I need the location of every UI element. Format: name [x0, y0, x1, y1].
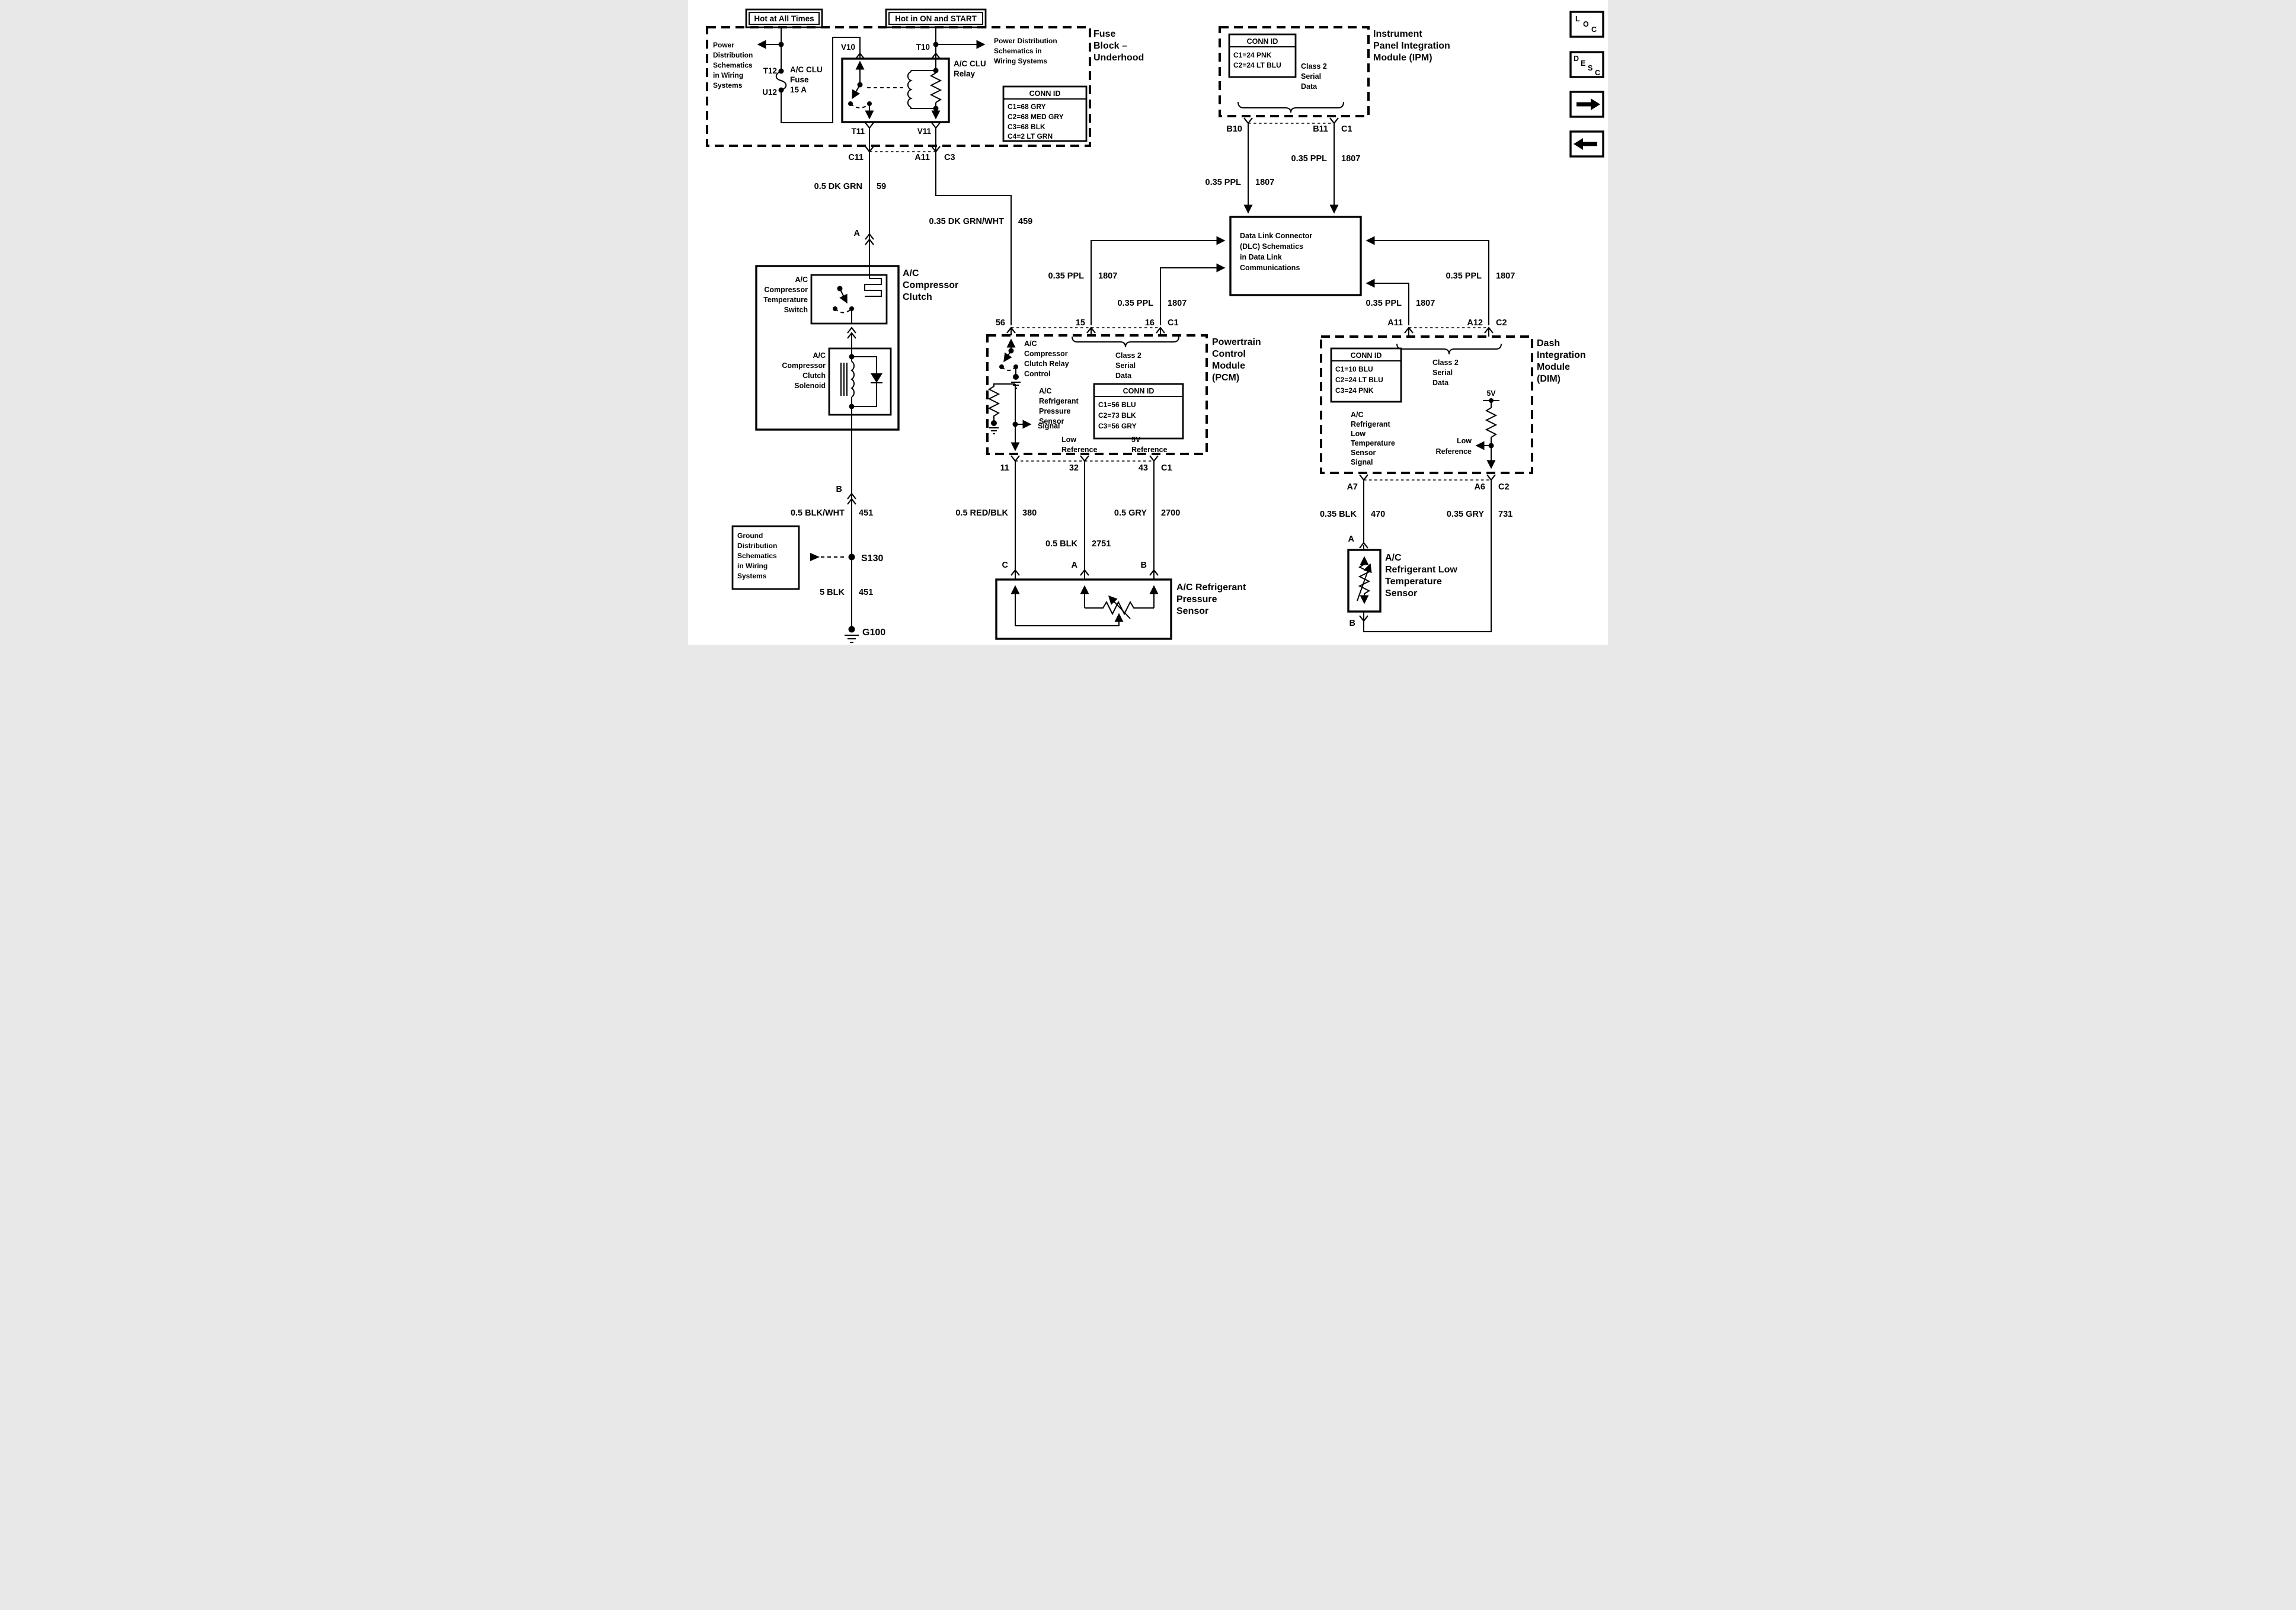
solenoid-coil: [852, 361, 854, 397]
pcm-class2-brace: [1072, 337, 1179, 347]
svg-text:CONN ID: CONN ID: [1123, 387, 1155, 395]
loc-button[interactable]: L O C: [1571, 12, 1603, 37]
svg-text:Compressor: Compressor: [903, 280, 958, 290]
wire-circuit: 731: [1498, 510, 1512, 519]
pin-15: 15: [1076, 318, 1085, 328]
svg-text:Serial: Serial: [1115, 361, 1136, 370]
svg-text:A/C CLU: A/C CLU: [790, 65, 823, 74]
dim-5v-pullup: 5V Low Reference: [1436, 389, 1499, 468]
pin-a7: A7: [1347, 482, 1358, 492]
schematic-canvas: Hot at All Times Hot in ON and START Fus…: [688, 0, 1608, 645]
svg-text:CONN ID: CONN ID: [1351, 351, 1382, 360]
ac-compressor-temperature-switch: A/C Compressor Temperature Switch: [763, 266, 887, 324]
pin-t11: T11: [851, 127, 865, 136]
svg-text:Data: Data: [1301, 82, 1318, 91]
wire-dk-grn-59: 0.5 DK GRN 59 A: [814, 152, 887, 266]
wire-ppl-1807-pcm15: 0.35 PPL 1807: [1048, 241, 1224, 325]
svg-text:Data: Data: [1115, 372, 1132, 380]
svg-text:Data: Data: [1432, 379, 1449, 387]
ground-g100-dot: [849, 626, 855, 633]
svg-text:Power Distribution: Power Distribution: [994, 37, 1057, 45]
pcm-bottom-connector: 11 32 43 C1: [1000, 456, 1172, 473]
wire-gauge: 0.35 BLK: [1320, 510, 1357, 519]
svg-text:Reference: Reference: [1131, 446, 1167, 454]
hot-in-on-start-banner: Hot in ON and START: [886, 9, 986, 27]
pin-c3: C3: [944, 153, 955, 162]
svg-text:C3=68 BLK: C3=68 BLK: [1008, 123, 1045, 131]
svg-text:O: O: [1583, 20, 1589, 28]
pcm-class2-label: Class 2 Serial Data: [1115, 351, 1141, 380]
dim-title: Dash: [1537, 338, 1560, 348]
fuse-block-underhood: Fuse Block – Underhood Power Distributio…: [707, 27, 1144, 152]
left-arrow-icon: [1574, 138, 1597, 150]
wire-gauge: 0.5 GRY: [1114, 508, 1147, 518]
ground-g100: G100: [862, 628, 885, 638]
dim-bottom-connector: A7 A6 C2: [1347, 475, 1509, 492]
wire-circuit: 1807: [1341, 154, 1360, 164]
pin-b11: B11: [1313, 124, 1328, 134]
svg-text:C4=2 LT GRN: C4=2 LT GRN: [1008, 132, 1053, 140]
svg-text:in Wiring: in Wiring: [713, 71, 743, 79]
svg-text:5V: 5V: [1131, 436, 1141, 444]
svg-text:C: C: [1591, 25, 1597, 34]
pressure-sensor-connector: C A B: [1002, 561, 1158, 580]
ac-refrigerant-low-temperature-sensor: A/C Refrigerant Low Temperature Sensor B: [1348, 550, 1457, 628]
dim-class2-label: Class 2 Serial Data: [1432, 359, 1459, 387]
ipm-title: Instrument: [1373, 29, 1422, 39]
wire-gauge: 0.5 BLK: [1045, 539, 1078, 549]
fuse-block-conn-id: CONN ID C1=68 GRY C2=68 MED GRY C3=68 BL…: [1003, 87, 1086, 141]
svg-text:C3=56 GRY: C3=56 GRY: [1098, 422, 1137, 430]
pin-t12: T12: [763, 66, 777, 75]
hot-at-all-times-banner: Hot at All Times: [746, 9, 822, 27]
svg-text:Sensor: Sensor: [1385, 588, 1417, 598]
svg-text:Pressure: Pressure: [1176, 594, 1217, 604]
svg-text:Signal: Signal: [1038, 422, 1060, 430]
svg-text:C1=68 GRY: C1=68 GRY: [1008, 103, 1046, 111]
svg-text:Refrigerant: Refrigerant: [1351, 420, 1391, 428]
pin-c1: C1: [1168, 318, 1179, 328]
svg-text:(DLC) Schematics: (DLC) Schematics: [1240, 242, 1303, 251]
data-link-connector-box: Data Link Connector (DLC) Schematics in …: [1230, 217, 1361, 295]
next-button[interactable]: [1571, 92, 1603, 117]
wire-blk-2751: 0.5 BLK 2751: [1045, 461, 1111, 570]
power-distribution-note-right: Power Distribution Schematics in Wiring …: [994, 37, 1057, 65]
svg-text:Wiring Systems: Wiring Systems: [994, 57, 1047, 65]
pin-a11: A11: [1387, 318, 1403, 328]
pcm-conn-id: CONN ID C1=56 BLU C2=73 BLK C3=56 GRY: [1094, 384, 1183, 438]
svg-text:Pressure: Pressure: [1039, 407, 1071, 415]
svg-text:Communications: Communications: [1240, 264, 1300, 272]
svg-text:A/C: A/C: [795, 276, 808, 284]
svg-text:Serial: Serial: [1432, 369, 1453, 377]
ac-compressor-clutch-solenoid: A/C Compressor Clutch Solenoid: [782, 348, 891, 415]
svg-text:Compressor: Compressor: [782, 361, 826, 370]
svg-text:Refrigerant Low: Refrigerant Low: [1385, 565, 1457, 575]
wire-gauge: 0.35 PPL: [1118, 299, 1154, 308]
dim-class2-brace: [1397, 344, 1501, 354]
svg-text:A/C CLU: A/C CLU: [954, 59, 986, 68]
svg-text:E: E: [1581, 59, 1585, 68]
svg-text:A/C: A/C: [1039, 387, 1052, 395]
svg-text:C2=73 BLK: C2=73 BLK: [1098, 411, 1136, 420]
svg-text:S: S: [1588, 64, 1593, 72]
svg-text:Sensor: Sensor: [1351, 449, 1376, 457]
svg-text:Power: Power: [713, 41, 734, 49]
svg-text:Panel Integration: Panel Integration: [1373, 41, 1450, 51]
svg-text:C2=24 LT BLU: C2=24 LT BLU: [1233, 61, 1281, 69]
svg-text:Low: Low: [1457, 437, 1472, 445]
svg-text:Signal: Signal: [1351, 458, 1373, 466]
svg-text:C1=24 PNK: C1=24 PNK: [1233, 51, 1272, 59]
svg-text:A/C: A/C: [1351, 411, 1364, 419]
pcm-low-reference-label: Low Reference: [1061, 436, 1097, 454]
banner-label: Hot at All Times: [754, 14, 814, 23]
svg-text:Module (IPM): Module (IPM): [1373, 53, 1432, 63]
wire-gauge: 0.35 PPL: [1446, 271, 1482, 281]
svg-text:Low: Low: [1351, 430, 1366, 438]
wire-circuit: 1807: [1168, 299, 1187, 308]
pin-v10: V10: [841, 43, 855, 52]
lts-title: A/C: [1385, 553, 1402, 563]
wire-gauge: 5 BLK: [820, 588, 845, 597]
pcm-title: Powertrain: [1212, 337, 1261, 347]
instrument-panel-integration-module: Instrument Panel Integration Module (IPM…: [1220, 27, 1450, 116]
desc-button[interactable]: D E S C: [1571, 52, 1603, 77]
wire-gauge: 0.35 DK GRN/WHT: [929, 217, 1005, 226]
temp-switch-blade: [840, 289, 847, 303]
svg-text:Class 2: Class 2: [1115, 351, 1141, 360]
svg-text:in Data Link: in Data Link: [1240, 253, 1282, 261]
wire-circuit: 1807: [1496, 271, 1515, 281]
splice-s130: S130: [861, 553, 883, 564]
svg-text:Schematics in: Schematics in: [994, 47, 1042, 55]
svg-text:Temperature: Temperature: [763, 296, 808, 304]
ac-compressor-clutch: A/C Compressor Clutch A/C Compressor Tem…: [756, 266, 958, 430]
t11-connector: [865, 123, 874, 128]
pin-a: A: [1072, 561, 1078, 570]
pressure-sensor-title: A/C Refrigerant: [1176, 582, 1246, 593]
desc-letter: D: [1574, 55, 1579, 63]
svg-text:Serial: Serial: [1301, 72, 1321, 81]
svg-text:Block –: Block –: [1093, 41, 1127, 51]
wire-gauge: 0.35 GRY: [1447, 510, 1484, 519]
svg-text:Clutch: Clutch: [903, 292, 932, 302]
wire-circuit: 459: [1018, 217, 1032, 226]
dim-conn-id: CONN ID C1=10 BLU C2=24 LT BLU C3=24 PNK: [1331, 348, 1401, 402]
svg-text:Clutch: Clutch: [802, 372, 826, 380]
svg-text:(PCM): (PCM): [1212, 373, 1239, 383]
solenoid-diode: [871, 373, 882, 383]
ipm-bottom-connector: B10 B11 C1: [1226, 118, 1352, 134]
inline-connector-b: B: [836, 485, 842, 494]
wire-gauge: 0.5 RED/BLK: [955, 508, 1008, 518]
svg-text:Class 2: Class 2: [1432, 359, 1459, 367]
back-button[interactable]: [1571, 132, 1603, 156]
clutch-title: A/C: [903, 268, 919, 279]
loc-letter: L: [1575, 15, 1580, 23]
svg-text:Fuse: Fuse: [790, 75, 809, 84]
dim-lts-signal-label: A/C Refrigerant Low Temperature Sensor S…: [1351, 411, 1395, 466]
pin-c: C: [1002, 561, 1009, 570]
ac-clu-relay: A/C CLU Relay: [842, 59, 986, 122]
svg-text:Solenoid: Solenoid: [794, 382, 826, 390]
svg-text:Temperature: Temperature: [1385, 577, 1442, 587]
wire-circuit: 1807: [1255, 178, 1274, 187]
pin-t10: T10: [916, 43, 930, 52]
pin-b10: B10: [1226, 124, 1242, 134]
temp-switch-element: [865, 266, 881, 296]
svg-text:Underhood: Underhood: [1093, 53, 1144, 63]
ipm-class2-label: Class 2 Serial Data: [1301, 62, 1327, 91]
relay-switch-blade: [852, 85, 860, 98]
pcm-top-connector: 56 15 16 C1: [996, 318, 1179, 335]
splice-s130-dot: [849, 554, 855, 561]
wire-gauge: 0.35 PPL: [1291, 154, 1328, 164]
pin-v11: V11: [917, 127, 932, 136]
wire-red-blk-380: 0.5 RED/BLK 380: [955, 461, 1037, 570]
wire-circuit: 1807: [1416, 299, 1435, 308]
pin-43: 43: [1139, 463, 1148, 473]
wire-circuit: 2700: [1161, 508, 1180, 518]
potentiometer-track: [1085, 602, 1154, 614]
inline-connector-a: A: [854, 229, 861, 238]
svg-text:Reference: Reference: [1061, 446, 1097, 454]
powertrain-control-module: Powertrain Control Module (PCM) A/C Comp…: [987, 335, 1261, 454]
svg-text:(DIM): (DIM): [1537, 374, 1560, 384]
pin-a6: A6: [1474, 482, 1485, 492]
svg-text:Switch: Switch: [784, 306, 808, 314]
svg-text:Compressor: Compressor: [764, 286, 808, 294]
wiring-diagram-page: Hot at All Times Hot in ON and START Fus…: [688, 0, 1608, 645]
wire-circuit: 451: [859, 588, 873, 597]
ground-distribution-note: Ground Distribution Schematics in Wiring…: [733, 526, 799, 589]
power-distribution-note-left: Power Distribution Schematics in Wiring …: [713, 41, 753, 89]
wire-ppl-1807-b10: 0.35 PPL 1807: [1205, 123, 1275, 213]
ground-chain: B 0.5 BLK/WHT 451 S130 Ground Distributi…: [733, 430, 885, 642]
svg-text:Refrigerant: Refrigerant: [1039, 397, 1079, 405]
wire-circuit: 470: [1371, 510, 1385, 519]
relay-resistor: [931, 73, 941, 103]
svg-text:CONN ID: CONN ID: [1247, 37, 1278, 46]
wire-ppl-1807-b11: 0.35 PPL 1807: [1291, 123, 1361, 213]
wire-circuit: 59: [877, 182, 886, 191]
v11-connector: [932, 123, 940, 128]
svg-text:C2=24 LT BLU: C2=24 LT BLU: [1335, 376, 1383, 384]
svg-text:Control: Control: [1212, 349, 1246, 359]
ac-refrigerant-pressure-sensor: A/C Refrigerant Pressure Sensor: [996, 580, 1246, 639]
pin-16: 16: [1145, 318, 1155, 328]
svg-text:Schematics: Schematics: [737, 552, 777, 560]
ipm-class2-brace: [1238, 102, 1344, 113]
wire-circuit: 380: [1022, 508, 1037, 518]
wire-circuit: 1807: [1098, 271, 1117, 281]
svg-text:Clutch Relay: Clutch Relay: [1024, 360, 1069, 368]
wire-gauge: 0.35 PPL: [1048, 271, 1085, 281]
ac-clu-fuse: T12 U12 A/C CLU Fuse 15 A: [762, 65, 823, 97]
fuse-block-title: Fuse: [1093, 29, 1115, 39]
pin-c11: C11: [848, 153, 864, 162]
fuse-block-bottom-connector: C11 A11 C3: [848, 146, 955, 162]
wire-gauge: 0.35 PPL: [1366, 299, 1402, 308]
pin-c2: C2: [1496, 318, 1507, 328]
svg-text:Temperature: Temperature: [1351, 439, 1395, 447]
pin-32: 32: [1069, 463, 1079, 473]
svg-text:Distribution: Distribution: [737, 542, 777, 550]
right-arrow-icon: [1576, 98, 1600, 110]
wire-circuit: 2751: [1092, 539, 1111, 549]
svg-text:Systems: Systems: [713, 81, 743, 89]
pin-c1: C1: [1161, 463, 1172, 473]
svg-text:A/C: A/C: [813, 351, 826, 360]
pin-b: B: [1350, 619, 1355, 628]
svg-text:Reference: Reference: [1436, 447, 1472, 456]
relay-coil: [908, 72, 911, 107]
svg-text:C1=10 BLU: C1=10 BLU: [1335, 365, 1373, 373]
pin-b: B: [1141, 561, 1147, 570]
svg-text:15 A: 15 A: [790, 85, 807, 94]
svg-text:in Wiring: in Wiring: [737, 562, 768, 570]
pin-11: 11: [1000, 463, 1009, 473]
svg-text:A/C: A/C: [1024, 340, 1037, 348]
pin-a12: A12: [1467, 318, 1483, 328]
wire-gry-2700: 0.5 GRY 2700: [1114, 461, 1180, 570]
wire-dk-grn-wht-459: 0.35 DK GRN/WHT 459: [929, 152, 1033, 325]
svg-text:C1=56 BLU: C1=56 BLU: [1098, 401, 1136, 409]
wire-gauge: 0.5 BLK/WHT: [791, 508, 845, 518]
inline-connector-a: A: [1348, 534, 1355, 544]
wire-ppl-1807-pcm16: 0.35 PPL 1807: [1118, 268, 1224, 325]
pin-a11: A11: [914, 153, 930, 162]
svg-text:Class 2: Class 2: [1301, 62, 1327, 71]
svg-text:C3=24 PNK: C3=24 PNK: [1335, 386, 1374, 395]
svg-text:Module: Module: [1212, 361, 1245, 371]
svg-text:Data Link Connector: Data Link Connector: [1240, 232, 1312, 240]
svg-text:Ground: Ground: [737, 532, 763, 540]
pin-c2: C2: [1498, 482, 1510, 492]
wire-circuit: 451: [859, 508, 873, 518]
pin-56: 56: [996, 318, 1005, 328]
pin-c1: C1: [1341, 124, 1352, 134]
svg-text:Control: Control: [1024, 370, 1050, 378]
svg-text:Sensor: Sensor: [1176, 606, 1208, 616]
svg-text:Distribution: Distribution: [713, 51, 753, 59]
ground-ref-arrow: [810, 553, 820, 561]
wire-gauge: 0.5 DK GRN: [814, 182, 862, 191]
svg-text:CONN ID: CONN ID: [1029, 89, 1061, 98]
svg-text:C: C: [1595, 69, 1600, 77]
svg-text:Systems: Systems: [737, 572, 767, 580]
wire-gauge: 0.35 PPL: [1205, 178, 1242, 187]
svg-text:Compressor: Compressor: [1024, 350, 1068, 358]
svg-text:Integration: Integration: [1537, 350, 1586, 360]
ipm-conn-id: CONN ID C1=24 PNK C2=24 LT BLU: [1229, 34, 1296, 77]
svg-text:C2=68 MED GRY: C2=68 MED GRY: [1008, 113, 1064, 121]
5v-label: 5V: [1486, 389, 1496, 398]
pcm-clutch-relay-control: A/C Compressor Clutch Relay Control: [999, 340, 1069, 388]
svg-text:Relay: Relay: [954, 69, 976, 78]
banner-label: Hot in ON and START: [895, 14, 977, 23]
dash-integration-module: Dash Integration Module (DIM) Class 2 Se…: [1321, 337, 1586, 473]
svg-text:Schematics: Schematics: [713, 61, 753, 69]
svg-text:Low: Low: [1061, 436, 1076, 444]
svg-text:Module: Module: [1537, 362, 1570, 372]
pin-u12: U12: [762, 88, 777, 97]
